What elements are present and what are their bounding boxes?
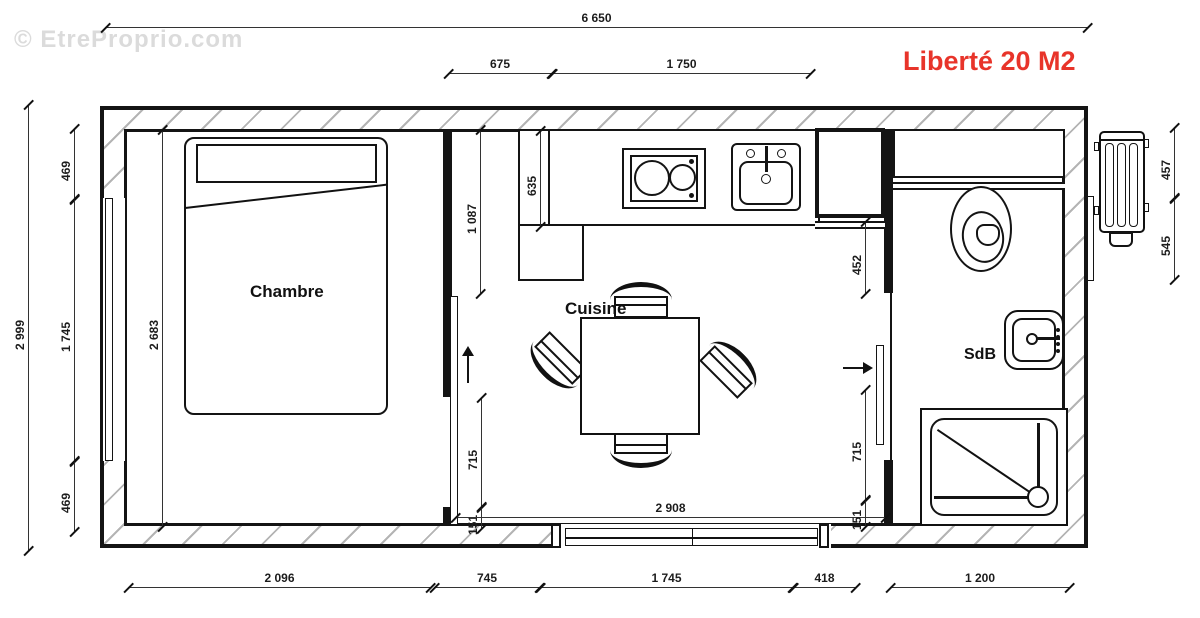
- dim-label: 635: [525, 175, 539, 195]
- chair-seat-line: [614, 444, 668, 446]
- dim-label: 715: [850, 442, 864, 462]
- chair-back: [610, 450, 672, 468]
- floor-plan-canvas: © EtreProprio.com Liberté 20 M2 Chambre: [0, 0, 1200, 618]
- basin-dot-2: [1056, 335, 1060, 339]
- shower-drain: [1027, 486, 1049, 508]
- sink-drain: [761, 174, 771, 184]
- pocket-door-right-leaf: [876, 345, 884, 445]
- dim-left-1745: 1 745: [74, 199, 75, 461]
- heater-lug-right-bottom: [1144, 203, 1149, 212]
- door-slide-arrow-right: [843, 362, 873, 375]
- basin-dot-1: [1056, 328, 1060, 332]
- bedroom-window-icon: [105, 198, 113, 461]
- dim-right-door-715: 715: [865, 390, 866, 500]
- dim-label: 2 908: [655, 501, 685, 515]
- dim-label: 6 650: [581, 11, 611, 25]
- dim-kitchen-1087: 1 087: [480, 130, 481, 293]
- bathroom-label: SdB: [964, 346, 996, 364]
- dim-bottom-1745: 1 745: [540, 587, 793, 588]
- heater-top-line: [1101, 139, 1143, 141]
- heater-slat-3: [1129, 143, 1138, 227]
- dim-label: 457: [1159, 160, 1173, 180]
- sink-tap-left: [746, 149, 755, 158]
- dim-label: 715: [466, 449, 480, 469]
- partition-bedroom-kitchen-upper: [443, 129, 452, 297]
- heater-bottom-tab: [1109, 232, 1133, 247]
- dining-table: [580, 317, 700, 435]
- kitchen-counter-lower-cabinet: [518, 224, 584, 281]
- dim-label: 452: [850, 254, 864, 274]
- dim-left-2999: 2 999: [28, 105, 29, 550]
- cooktop-knob-bottom: [689, 193, 694, 198]
- cooktop-burner-small: [669, 164, 696, 191]
- dim-left-door-715: 715: [481, 398, 482, 507]
- arrow-up-shaft: [467, 355, 469, 383]
- heater-lug-right-top: [1144, 139, 1149, 148]
- heater-lug-left-bottom: [1094, 206, 1099, 215]
- dim-top-1750: 1 750: [552, 73, 811, 74]
- heater-lug-left-top: [1094, 142, 1099, 151]
- dim-label: 2 683: [147, 320, 161, 350]
- closet-shelf-band: [815, 221, 885, 229]
- dim-label: 1 087: [465, 203, 479, 233]
- plan-title: Liberté 20 M2: [903, 46, 1076, 77]
- basin-dot-3: [1056, 342, 1060, 346]
- dim-label: 1 745: [651, 571, 681, 585]
- cooktop-knob-top: [689, 159, 694, 164]
- pocket-door-left-leaf: [450, 296, 458, 525]
- dim-label: 2 999: [13, 319, 27, 349]
- dim-right-457: 457: [1174, 128, 1175, 198]
- dim-label: 545: [1159, 235, 1173, 255]
- dim-left-469-top: 469: [74, 129, 75, 199]
- heater-bracket: [1087, 196, 1094, 281]
- basin-faucet-knob: [1026, 333, 1038, 345]
- partition-kitchen-bath-upper: [884, 129, 893, 293]
- dim-right-545: 545: [1174, 198, 1175, 279]
- watermark: © EtreProprio.com: [14, 26, 243, 54]
- basin-dot-4: [1056, 349, 1060, 353]
- dim-label: 745: [477, 571, 497, 585]
- dim-bottom-1200: 1 200: [890, 587, 1070, 588]
- bathroom-top-shelf: [893, 129, 1065, 178]
- dim-bottom-418: 418: [793, 587, 856, 588]
- shower-horizontal-line: [934, 496, 1039, 499]
- dim-bottom-2096: 2 096: [128, 587, 431, 588]
- dim-bottom-745: 745: [434, 587, 540, 588]
- dim-label: 2 096: [264, 571, 294, 585]
- dim-label: 1 750: [666, 57, 696, 71]
- dim-top-total: 6 650: [105, 27, 1088, 28]
- dim-label: 469: [59, 161, 73, 181]
- sink-faucet: [765, 146, 768, 172]
- dim-label: 418: [814, 571, 834, 585]
- door-slide-arrow-up: [462, 346, 475, 384]
- bed-pillow: [196, 144, 377, 183]
- dim-label: 675: [490, 57, 510, 71]
- arrow-right-shaft: [843, 367, 864, 369]
- closet: [815, 128, 885, 218]
- partition-kitchen-bath-face: [890, 293, 892, 460]
- partition-bedroom-kitchen-mid: [443, 296, 450, 397]
- arrow-right-head: [863, 362, 873, 374]
- chair-back: [610, 282, 672, 300]
- dim-label: 469: [59, 493, 73, 513]
- dim-bedroom-2683: 2 683: [162, 130, 163, 526]
- heater-slat-1: [1105, 143, 1114, 227]
- dim-bath-452: 452: [865, 222, 866, 293]
- dim-label: 151: [850, 510, 864, 530]
- dim-left-469-bottom: 469: [74, 461, 75, 531]
- bedroom-label: Chambre: [250, 282, 324, 302]
- cooktop-burner-large: [634, 160, 670, 196]
- dim-counter-635: 635: [540, 131, 541, 226]
- sink-tap-right: [777, 149, 786, 158]
- sliding-door-split-line: [692, 529, 694, 545]
- sliding-door-jamb-left: [551, 524, 561, 548]
- dim-label: 1 745: [59, 322, 73, 352]
- sliding-door-jamb-right: [819, 524, 829, 548]
- chair-bottom: [610, 432, 672, 468]
- dim-kitchen-2908: 2 908: [455, 517, 886, 518]
- heater-slat-2: [1117, 143, 1126, 227]
- dim-right-door-151: 151: [865, 500, 866, 526]
- dim-top-675: 675: [448, 73, 552, 74]
- kitchen-label: Cuisine: [565, 299, 626, 319]
- sliding-door-icon: [565, 528, 818, 546]
- dim-label: 1 200: [965, 571, 995, 585]
